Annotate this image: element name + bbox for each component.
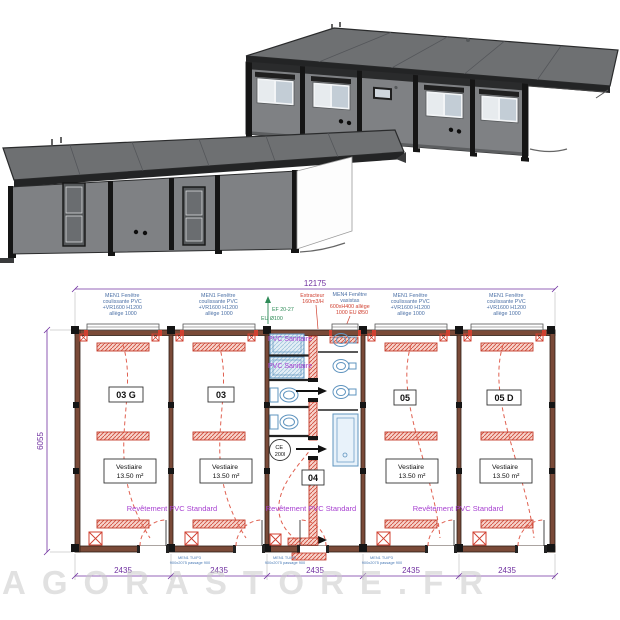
window bbox=[424, 85, 464, 119]
floor-drain bbox=[185, 532, 198, 545]
wc-icon bbox=[270, 388, 298, 402]
bench bbox=[193, 343, 245, 351]
room-label: 04 bbox=[308, 473, 318, 483]
bench bbox=[481, 520, 533, 528]
room-03g: 03 G Vestiaire 13.50 m² bbox=[80, 334, 169, 553]
bench bbox=[385, 343, 437, 351]
annotation-men1: MEN1 Fenêtre coulissante PVC +VR1600 H12… bbox=[391, 293, 432, 317]
door bbox=[63, 183, 85, 246]
vent-arrow bbox=[265, 296, 271, 303]
revetement-label: Revêtement PVC Standard bbox=[127, 504, 217, 513]
washbasin-icon bbox=[333, 360, 356, 373]
annotation-men1: MEN1 Fenêtre coulissante PVC +VR1600 H12… bbox=[103, 293, 144, 317]
bench bbox=[385, 432, 437, 440]
revetement-label: Revêtement PVC Standard bbox=[413, 504, 503, 513]
pipe-outlet bbox=[134, 230, 138, 234]
svg-text:CE 200l: CE 200l bbox=[275, 445, 285, 458]
end-wall bbox=[297, 157, 352, 249]
circulation-path bbox=[279, 450, 310, 544]
pvc-sanitaire-label: PVC Sanitaire bbox=[268, 363, 312, 370]
bench bbox=[97, 343, 149, 351]
roof-vent bbox=[466, 38, 470, 42]
annotation-men4: MEN4 Fenêtre vasistas 600xH400 allège 10… bbox=[330, 283, 374, 316]
door-opening bbox=[236, 546, 262, 553]
bench bbox=[97, 520, 149, 528]
product-drawing: 12175 6055 2435 2435 2435 2435 2435 bbox=[0, 0, 620, 620]
skid bbox=[530, 149, 567, 152]
watermark: AGORASTORE.FR bbox=[2, 564, 499, 601]
sink-unit bbox=[333, 414, 358, 466]
pvc-sanitaire-label: PVC Sanitaire bbox=[268, 336, 312, 343]
dim-height-label: 6055 bbox=[36, 432, 45, 450]
room-label: 05 bbox=[400, 393, 410, 403]
annotation-extracteur: Extracteur 160m3/H bbox=[300, 293, 326, 305]
exterior-step bbox=[292, 553, 326, 560]
room-05: 05 Vestiaire 13.50 m² bbox=[368, 334, 457, 553]
room-label: 05 D bbox=[494, 393, 514, 403]
room-label: 03 G bbox=[116, 390, 136, 400]
window bbox=[255, 72, 295, 106]
room-label: 03 bbox=[216, 390, 226, 400]
dim-module-label: 2435 bbox=[498, 566, 516, 575]
dimension-height: 6055 bbox=[36, 327, 50, 555]
floor-drain bbox=[473, 532, 486, 545]
floor-drain bbox=[89, 532, 102, 545]
door bbox=[183, 187, 205, 245]
annotation-ef: EF 20-27 bbox=[272, 307, 294, 313]
wc-icon bbox=[270, 415, 298, 429]
door-opening bbox=[518, 546, 544, 553]
bench bbox=[193, 432, 245, 440]
annotation-eu100: EU Ø100 bbox=[261, 316, 283, 322]
circulation-path bbox=[219, 345, 246, 538]
door-opening bbox=[300, 546, 326, 553]
bench bbox=[481, 343, 533, 351]
door-opening bbox=[428, 546, 454, 553]
revetement-label: Revêtement PVC Standard bbox=[266, 504, 356, 513]
partition bbox=[309, 402, 317, 440]
annotation-men1: MEN1 Fenêtre coulissante PVC +VR1600 H12… bbox=[199, 293, 240, 317]
window-annotations: MEN1 Fenêtre coulissante PVC +VR1600 H12… bbox=[103, 283, 528, 329]
modular-building-drawing: 12175 6055 2435 2435 2435 2435 2435 bbox=[0, 0, 620, 620]
circulation-path bbox=[499, 345, 534, 538]
floor-plan: 12175 6055 2435 2435 2435 2435 2435 bbox=[36, 279, 558, 580]
dim-total-label: 12175 bbox=[304, 279, 327, 288]
building-3d-rear-view bbox=[0, 130, 406, 263]
washbasin-icon bbox=[333, 386, 356, 399]
room-05d: 05 D Vestiaire 13.50 m² bbox=[464, 334, 547, 553]
bench bbox=[385, 520, 437, 528]
bench bbox=[97, 432, 149, 440]
bench bbox=[193, 520, 245, 528]
window bbox=[479, 89, 519, 123]
pipe-outlet bbox=[143, 231, 147, 235]
floor-drain bbox=[377, 532, 390, 545]
dimension-total-width: 12175 bbox=[72, 279, 558, 292]
window bbox=[311, 76, 351, 110]
bench bbox=[481, 432, 533, 440]
water-heater: CE 200l bbox=[270, 440, 291, 461]
door-opening bbox=[140, 546, 166, 553]
annotation-men1: MEN1 Fenêtre coulissante PVC +VR1600 H12… bbox=[487, 293, 528, 317]
mat bbox=[288, 538, 318, 545]
floor-drain bbox=[270, 534, 281, 545]
room-03: 03 Vestiaire 13.50 m² bbox=[176, 334, 265, 553]
room-04-sanitary: CE 200l PVC Sanitaire PVC Sanitaire 04 bbox=[268, 334, 358, 561]
